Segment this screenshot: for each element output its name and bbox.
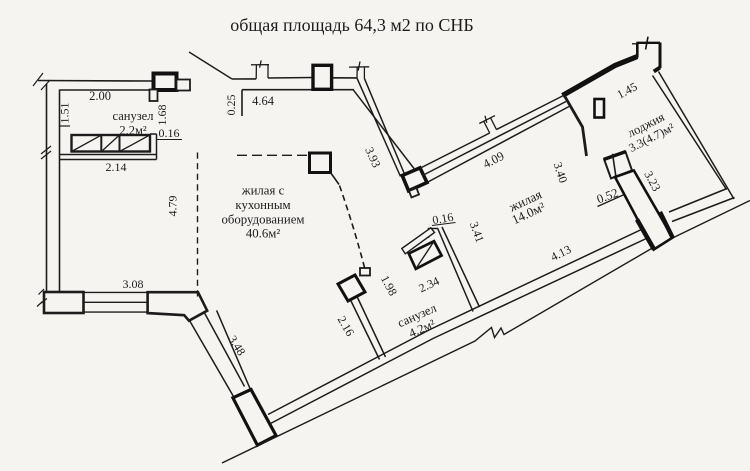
- svg-text:3.08: 3.08: [123, 277, 144, 291]
- svg-text:4.64: 4.64: [252, 94, 275, 108]
- svg-text:1.51: 1.51: [58, 103, 72, 124]
- svg-text:оборудованием: оборудованием: [221, 213, 304, 227]
- svg-text:жилая с: жилая с: [241, 184, 285, 198]
- svg-text:кухонным: кухонным: [235, 198, 290, 212]
- svg-text:2.14: 2.14: [106, 160, 127, 174]
- svg-text:2.00: 2.00: [89, 89, 111, 103]
- svg-text:0.25: 0.25: [224, 95, 238, 116]
- svg-text:1.68: 1.68: [155, 105, 169, 126]
- svg-text:4.79: 4.79: [166, 196, 180, 217]
- svg-text:0.16: 0.16: [159, 126, 180, 140]
- svg-text:общая площадь 64,3 м2 по СНБ: общая площадь 64,3 м2 по СНБ: [230, 15, 473, 35]
- svg-text:40.6м²: 40.6м²: [246, 227, 280, 241]
- svg-text:санузел: санузел: [113, 109, 154, 123]
